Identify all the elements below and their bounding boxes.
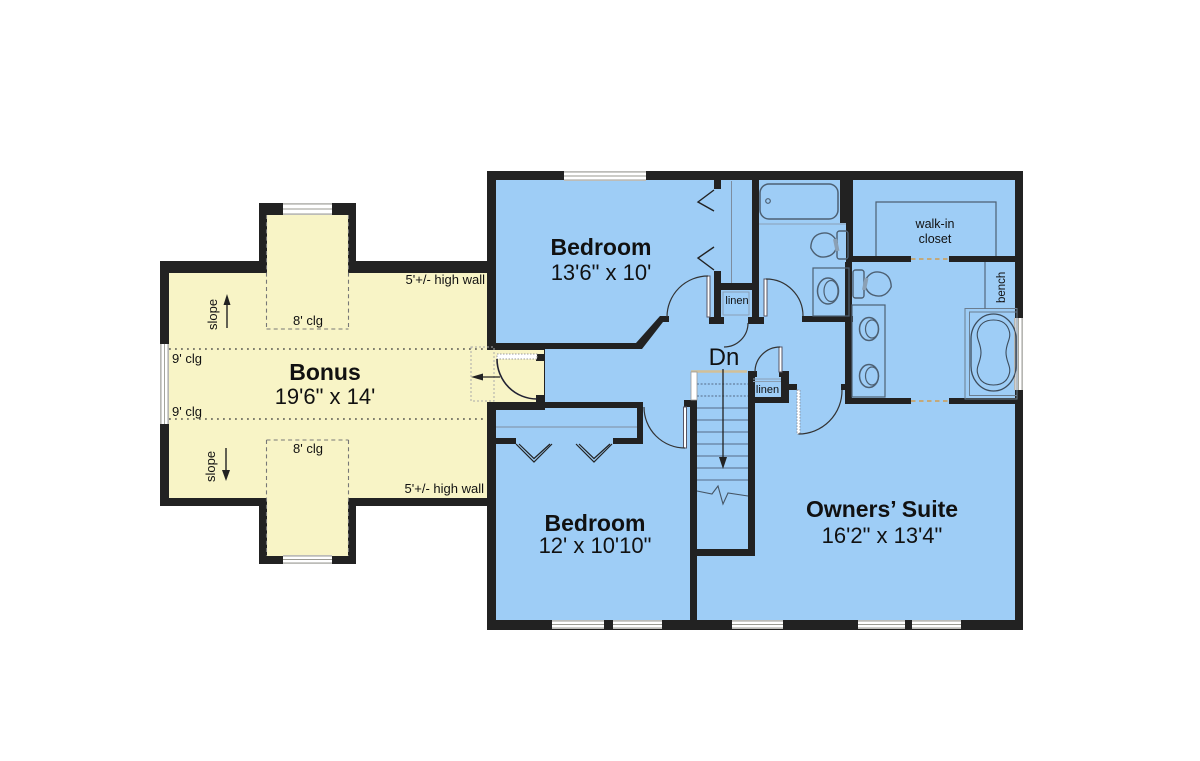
svg-text:16'2" x 13'4": 16'2" x 13'4" <box>822 523 943 548</box>
svg-text:8' clg: 8' clg <box>293 441 323 456</box>
svg-text:Bonus: Bonus <box>289 359 361 385</box>
svg-text:Owners’ Suite: Owners’ Suite <box>806 496 958 522</box>
svg-text:walk-in: walk-in <box>915 217 955 231</box>
svg-text:linen: linen <box>756 384 779 396</box>
svg-text:Bedroom: Bedroom <box>551 234 652 260</box>
svg-text:bench: bench <box>996 272 1008 303</box>
svg-text:8' clg: 8' clg <box>293 313 323 328</box>
svg-text:closet: closet <box>919 232 952 246</box>
svg-text:5'+/- high wall: 5'+/- high wall <box>406 272 486 287</box>
svg-text:13'6" x 10': 13'6" x 10' <box>551 260 652 285</box>
svg-text:5'+/- high wall: 5'+/- high wall <box>405 481 485 496</box>
svg-text:9' clg: 9' clg <box>172 404 202 419</box>
svg-text:slope: slope <box>203 451 218 482</box>
svg-text:linen: linen <box>725 295 748 307</box>
svg-text:12' x 10'10": 12' x 10'10" <box>539 533 652 558</box>
svg-text:19'6" x 14': 19'6" x 14' <box>275 384 376 409</box>
svg-text:slope: slope <box>205 299 220 330</box>
svg-text:Dn: Dn <box>709 344 740 371</box>
svg-text:9' clg: 9' clg <box>172 351 202 366</box>
